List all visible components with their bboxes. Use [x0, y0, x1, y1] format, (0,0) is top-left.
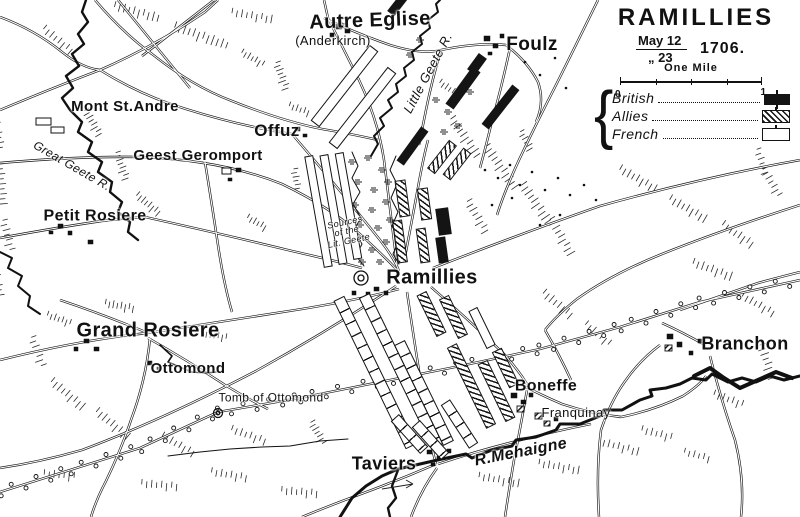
title-block: RAMILLIES May 12 „ 23 1706. One Mile 0 1 — [596, 4, 796, 32]
scale-tick — [620, 77, 621, 85]
scale-tick — [691, 79, 692, 85]
legend: { British Allies French — [598, 88, 790, 142]
legend-item-allies: Allies — [612, 106, 790, 124]
place-label-offuz: Offuz — [254, 122, 299, 140]
place-label-geest-geromport: Geest Geromport — [133, 148, 262, 164]
date-old-style: May 12 — [636, 33, 687, 50]
place-label-anderkirch: (Anderkirch) — [295, 34, 371, 48]
place-label-grand-rosiere: Grand Rosiere — [76, 321, 219, 342]
place-label-autre-eglise: Autre Eglise — [309, 8, 431, 33]
place-label-foulz: Foulz — [506, 35, 558, 55]
dotted-leader — [658, 102, 760, 103]
place-label-mont-st-andre: Mont St.Andre — [71, 99, 179, 115]
place-label-taviers: Taviers — [352, 455, 417, 474]
place-label-r-mehaigne: R.Mehaigne — [473, 436, 568, 470]
place-label-great-geete-r: Great Geete R. — [31, 139, 113, 193]
legend-item-british: British — [612, 88, 790, 106]
scale-ruler: 0 1 — [620, 77, 762, 85]
british-swatch — [764, 94, 790, 105]
legend-label: Allies — [612, 108, 648, 124]
place-label-branchon: Branchon — [701, 335, 788, 354]
dotted-leader — [652, 120, 758, 121]
scale-tick — [656, 79, 657, 85]
place-label-ottomond: Ottomond — [151, 361, 226, 377]
battle-year: 1706. — [700, 40, 745, 58]
place-label-little-geete-r: Little Geete R. — [401, 30, 455, 115]
legend-rows: British Allies French — [612, 88, 790, 142]
legend-item-french: French — [612, 124, 790, 142]
place-label-tomb-of-ottomond: Tomb of Ottomond — [218, 392, 323, 405]
legend-label: French — [612, 126, 659, 142]
legend-label: British — [612, 90, 654, 106]
place-label-ramillies: Ramillies — [386, 268, 477, 289]
french-swatch — [762, 128, 790, 141]
place-label-franquinay: Franquinay — [541, 406, 610, 420]
scale-label: One Mile — [620, 62, 762, 74]
battle-date: May 12 „ 23 — [636, 33, 687, 65]
scale-tick — [761, 77, 762, 85]
place-label-petit-rosiere: Petit Rosiere — [43, 209, 146, 226]
dotted-leader — [663, 138, 758, 139]
legend-brace: { — [594, 83, 613, 148]
scale-tick — [727, 79, 728, 85]
place-label-sources-lit-geete: Sources of the Lit. Geete — [323, 214, 371, 251]
battle-map: Autre Eglise(Anderkirch)FoulzMont St.And… — [0, 0, 800, 517]
place-label-boneffe: Boneffe — [515, 379, 577, 396]
map-title: RAMILLIES — [596, 4, 796, 32]
allies-swatch — [762, 110, 790, 123]
